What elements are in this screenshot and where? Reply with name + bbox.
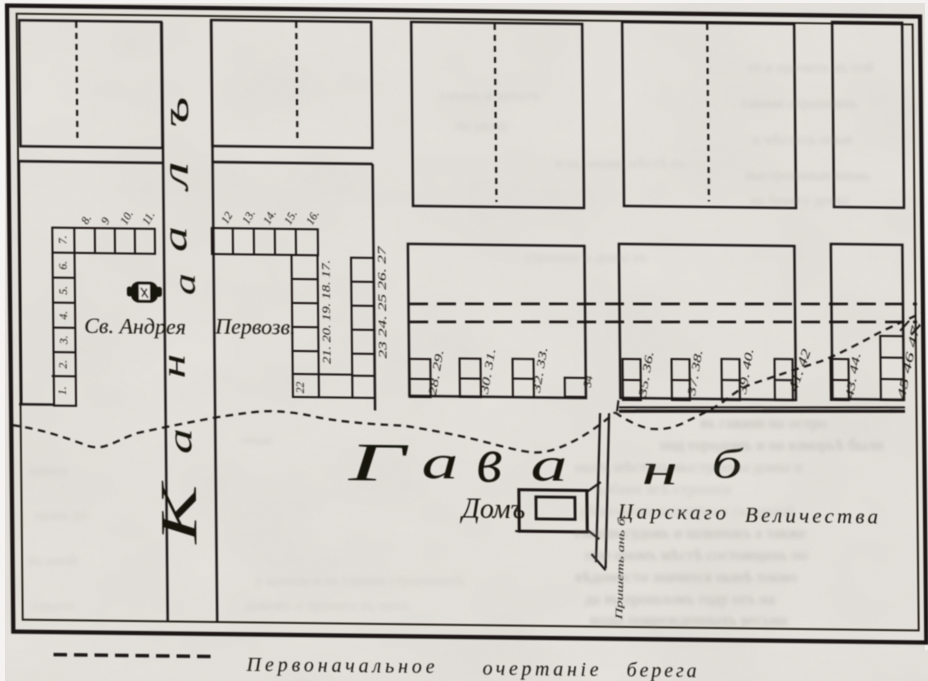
svg-text:гавань и каналъ: гавань и каналъ (440, 88, 541, 104)
svg-text:21. 20. 19. 18. 17.: 21. 20. 19. 18. 17. (319, 260, 333, 364)
svg-text:3.: 3. (58, 335, 70, 345)
svg-text:и мѣстахъ оныя: и мѣстахъ оныя (752, 132, 853, 148)
svg-text:4.: 4. (58, 311, 70, 320)
svg-text:въ оной: въ оной (28, 553, 77, 569)
svg-text:строенія и домы въ: строенія и домы въ (525, 250, 648, 266)
svg-text:ныхъ мѣстахъ выстроены домы и: ныхъ мѣстахъ выстроены домы и (575, 459, 803, 476)
svg-text:Св. Андрея: Св. Андрея (84, 313, 186, 339)
svg-text:а: а (161, 428, 199, 454)
svg-text:выстроенныя вновь: выстроенныя вновь (745, 168, 871, 184)
svg-text:22: 22 (295, 381, 307, 393)
svg-text:6.: 6. (58, 261, 70, 270)
svg-text:Г: Г (347, 432, 410, 493)
svg-text:на берегу домы: на берегу домы (750, 193, 849, 209)
svg-text:оные: оные (240, 433, 273, 449)
svg-text:да въ прошломъ году отъ на: да въ прошломъ году отъ на (585, 591, 775, 608)
svg-text:камен: камен (30, 463, 68, 479)
svg-text:Домъ: Домъ (459, 493, 525, 525)
svg-text:а: а (530, 439, 567, 492)
svg-text:при ономъ мѣстѣ состоящихъ по: при ономъ мѣстѣ состоящихъ по (585, 547, 808, 564)
svg-text:23 24. 25 26. 27: 23 24. 25 26. 27 (376, 246, 390, 359)
svg-text:въ гавани на остро: въ гавани на остро (700, 415, 827, 432)
svg-text:вѣдомости значится нынѣ токмо: вѣдомости значится нынѣ токмо (575, 569, 797, 586)
svg-text:воды поврежденныхъ весьма: воды поврежденныхъ весьма (590, 612, 787, 629)
svg-text:а: а (421, 436, 458, 489)
svg-text:гавани строеніяхъ: гавани строеніяхъ (742, 96, 857, 112)
svg-text:го и прочихъ въ той: го и прочихъ въ той (748, 60, 874, 76)
svg-text:в: в (476, 425, 503, 496)
svg-text:кабаки всѣ строенія: кабаки всѣ строенія (596, 481, 732, 498)
svg-text:34: 34 (582, 374, 596, 389)
svg-text:К: К (149, 480, 208, 545)
svg-text:л: л (155, 161, 196, 193)
svg-text:рѣшеніемъ конторы и галерной: рѣшеніемъ конторы и галерной (580, 503, 795, 520)
svg-text:5.: 5. (58, 286, 70, 295)
svg-text:7.: 7. (57, 235, 69, 244)
svg-text:по указу: по указу (455, 118, 509, 134)
svg-text:ныхъ до: ныхъ до (35, 508, 87, 524)
svg-text:а: а (168, 273, 203, 295)
svg-text:Первозв.: Первозв. (214, 314, 296, 340)
svg-text:1.: 1. (57, 386, 69, 395)
svg-text:ъ: ъ (155, 96, 197, 127)
svg-text:гавани: гавани (32, 598, 74, 614)
svg-text:очертаніе: очертаніе (483, 658, 599, 681)
svg-text:н: н (155, 354, 193, 379)
svg-text:2.: 2. (58, 360, 70, 369)
svg-text:гавани судовъ и шлюпокъ а такж: гавани судовъ и шлюпокъ а также (575, 525, 806, 542)
svg-text:домовъ и прочаго въ нихъ: домовъ и прочаго въ нихъ (245, 598, 410, 614)
svg-text:и въ ономъ мѣстѣ га: и въ ономъ мѣстѣ га (555, 156, 685, 172)
svg-text:а: а (156, 226, 194, 252)
svg-text:у канала и въ гавани строенных: у канала и въ гавани строенныхъ (255, 573, 465, 589)
svg-text:под городомъ и на взморьѣ были: под городомъ и на взморьѣ были (660, 437, 884, 454)
